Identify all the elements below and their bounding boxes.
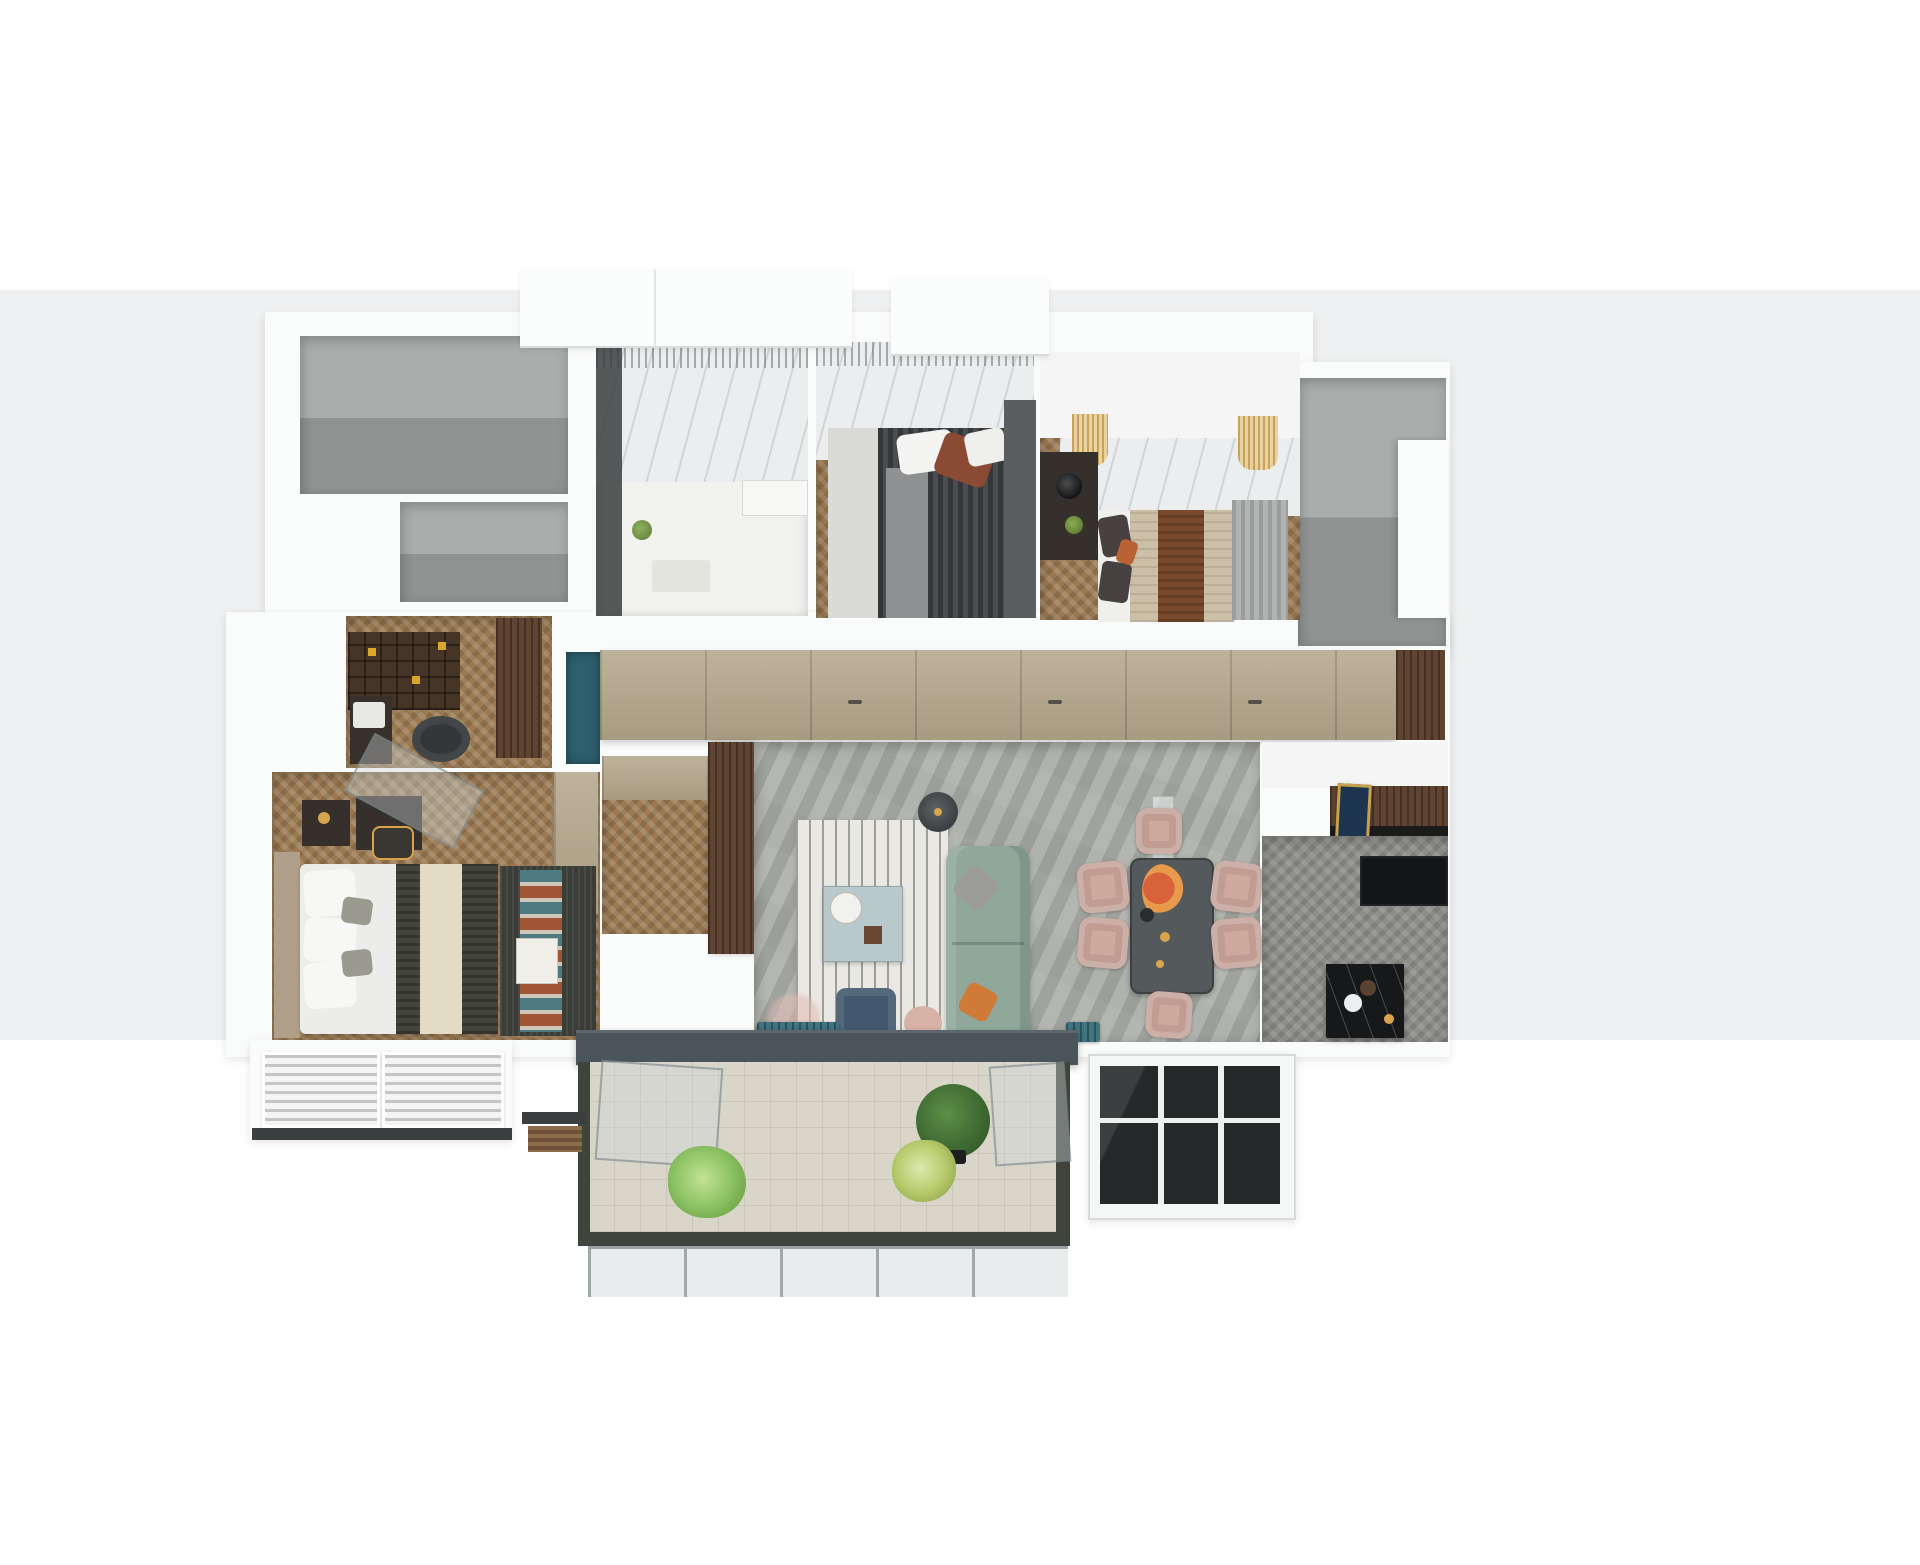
dining-chair-left-2	[1076, 916, 1130, 970]
hallway-wardrobe-walnut-end	[1396, 650, 1445, 740]
ac-louver-left	[262, 1052, 380, 1128]
bedroom2-runner	[1158, 510, 1204, 622]
printer-icon	[353, 702, 385, 728]
office-chair	[412, 716, 470, 762]
balcony-rim-bottom	[578, 1232, 1070, 1246]
master-tray	[516, 938, 558, 984]
window-rail	[252, 1128, 512, 1140]
ac-louver-right	[382, 1052, 504, 1128]
kitchen-wall	[1262, 742, 1448, 788]
bookshelf-accent-1	[368, 648, 376, 656]
bedroom2-lamp-icon	[1056, 473, 1082, 499]
shower-glass	[596, 342, 622, 616]
balcony-rim-left	[578, 1062, 590, 1246]
utility-mullion-h	[1100, 1118, 1280, 1123]
candle-gold-3	[1156, 960, 1164, 968]
master-duvet-dark2	[462, 864, 498, 1034]
floor-lamp-bulb	[934, 808, 942, 816]
gray-shell-step	[1398, 440, 1448, 618]
dining-chair-right-1	[1209, 859, 1265, 915]
gray-shell-room-c	[400, 502, 568, 602]
roof-cap-divider	[654, 270, 656, 346]
bedroom2-plant-icon	[1065, 516, 1083, 534]
bedroom2-curtain-tuft-right	[1238, 416, 1278, 470]
corner-wood-louver	[528, 1126, 582, 1152]
dining-vase	[1140, 908, 1154, 922]
bath-mat	[652, 560, 710, 592]
nightstand-gold-decor	[318, 812, 330, 824]
master-pillow-gray2	[341, 949, 374, 978]
balustrade-glass	[588, 1246, 1068, 1297]
bedroom2-nightstand	[1040, 452, 1098, 560]
study-door	[496, 618, 542, 758]
master-pillow-gray1	[340, 896, 373, 926]
utility-mullion-v2	[1218, 1066, 1224, 1204]
dining-chair-right-2	[1210, 916, 1264, 970]
island-gold-dot	[1384, 1014, 1394, 1024]
dining-chair-left-1	[1076, 860, 1131, 915]
island-bowl-brown	[1360, 980, 1376, 996]
bathroom-plant-icon	[632, 520, 652, 540]
floor-plan-render	[0, 0, 1920, 1565]
corner-rail	[522, 1112, 586, 1124]
entry-door-teal	[566, 652, 600, 764]
master-duvet-cream	[420, 864, 462, 1034]
bedroom1-bed-sheet	[828, 428, 878, 618]
roof-cap-left	[520, 270, 852, 348]
coffee-box	[864, 926, 882, 944]
roof-cap-right	[891, 278, 1049, 356]
vanity	[742, 480, 808, 516]
kitchen-island	[1326, 964, 1404, 1038]
kitchen-counter	[1360, 856, 1448, 906]
master-duvet-dark1	[396, 864, 420, 1034]
bedroom2-curtain-gray	[1232, 500, 1288, 620]
plant-spiky-green	[668, 1146, 746, 1218]
balcony-sill	[576, 1030, 1078, 1065]
utility-dark-glazing	[1100, 1066, 1280, 1204]
sliding-glass-right	[989, 1061, 1072, 1166]
closet-wardrobe	[602, 756, 708, 800]
gray-shell-room-a	[300, 336, 568, 494]
tv-wall	[708, 742, 754, 954]
wardrobe-handle-3	[1248, 700, 1262, 704]
vanity-chair	[372, 826, 414, 860]
dining-chair-bottom	[1144, 990, 1193, 1039]
bookshelf-accent-3	[438, 642, 446, 650]
wardrobe-handle-2	[1048, 700, 1062, 704]
hallway-wardrobe	[600, 650, 1396, 740]
bedroom2-pillow-dark2	[1097, 560, 1132, 604]
bedroom1-throw	[886, 468, 928, 618]
island-cup-white	[1344, 994, 1362, 1012]
dining-chair-head	[1136, 808, 1182, 854]
coffee-tray	[830, 892, 862, 924]
wardrobe-handle-1	[848, 700, 862, 704]
sofa-seam	[952, 942, 1024, 945]
bedroom1-wardrobe-panel	[1004, 400, 1036, 618]
master-headboard	[274, 852, 300, 1038]
utility-mullion-v1	[1158, 1066, 1164, 1204]
bookshelf-accent-2	[412, 676, 420, 684]
candle-gold-2	[1160, 932, 1170, 942]
